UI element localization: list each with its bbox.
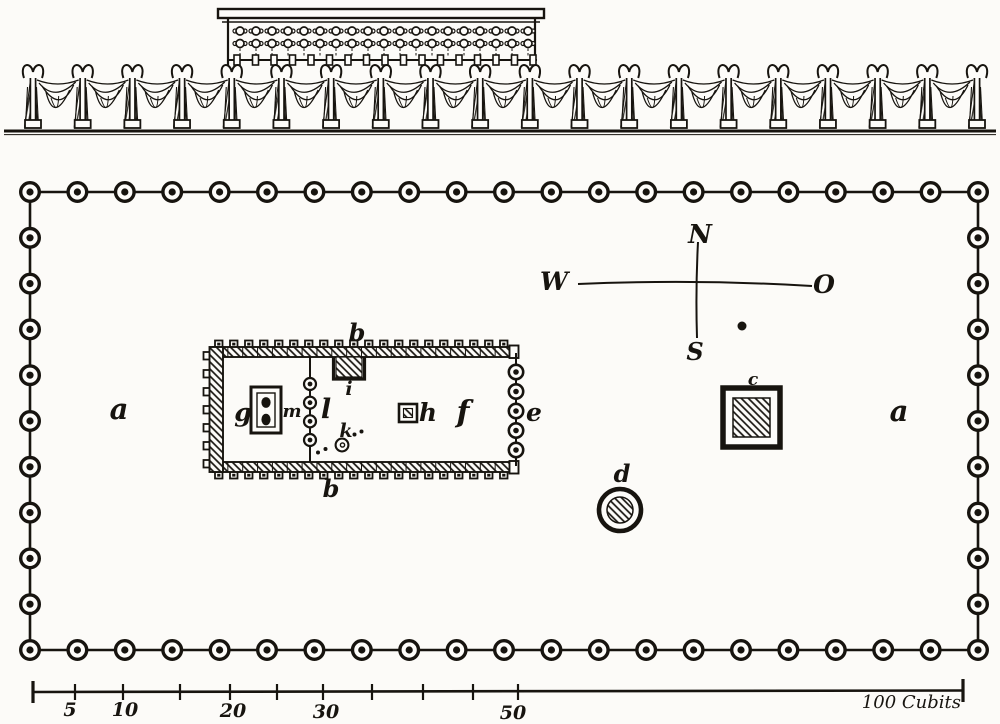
curtain-drape (733, 80, 775, 108)
curtain-loop (268, 27, 276, 35)
court-pillar-dot (121, 646, 128, 653)
court-cord (30, 192, 978, 650)
compass-east-label: O (813, 270, 835, 299)
curtain-drape (136, 80, 178, 108)
board-knob-pin (472, 343, 475, 346)
drape-fold (37, 80, 79, 84)
board-knob-pin (277, 474, 280, 477)
court-pillar-dot (927, 188, 934, 195)
drape-fold (584, 80, 626, 84)
label-b-top: b (349, 318, 366, 347)
drape-fold (87, 80, 129, 84)
board-knob-pin (262, 343, 265, 346)
pillar-shaft (925, 76, 930, 122)
court-pillar-dot (832, 646, 839, 653)
pillar-shaft (676, 76, 681, 122)
court-pillar (21, 183, 40, 202)
pillar-shaft (80, 76, 85, 122)
curtain-loop (332, 27, 340, 35)
court-pillar-dot (453, 188, 460, 195)
scale-label-50: 50 (500, 702, 526, 724)
pillar-capital (967, 65, 987, 78)
court-pillar (969, 595, 988, 614)
court-pillar-dot (595, 646, 602, 653)
pillar-shaft (825, 76, 830, 122)
curtain-loop (524, 27, 532, 35)
curtain-loop (492, 27, 500, 35)
rod-bead (253, 55, 259, 65)
rod-bead (290, 55, 296, 65)
compass-south-label: S (686, 337, 703, 366)
veil-pillar-dot (308, 382, 313, 387)
drape-fold (683, 80, 725, 84)
pillar-capital (718, 65, 738, 78)
court-pillar-dot (974, 234, 981, 241)
drape-fold (285, 80, 327, 84)
court-pillar (921, 183, 940, 202)
court-pillar (969, 458, 988, 477)
curtain-loop (380, 27, 388, 35)
court-pillar-dot (26, 646, 33, 653)
board-knob-pin (502, 474, 505, 477)
drape-fold (236, 80, 278, 84)
court-pillar-dot (26, 601, 33, 608)
curtain-loop (236, 27, 244, 35)
curtain-drape (236, 80, 278, 108)
drape-fold (733, 80, 775, 84)
court-pillar (732, 183, 751, 202)
compass-ns-line (696, 242, 698, 338)
curtain-loop (252, 27, 260, 35)
curtain-loop (508, 27, 516, 35)
court-pillar (353, 641, 372, 660)
court-pillar-dot (358, 646, 365, 653)
court-pillar-dot (406, 646, 413, 653)
board-knob-pin (382, 474, 385, 477)
board-knob-pin (217, 343, 220, 346)
court-pillar-dot (453, 646, 460, 653)
pillar-shaft (428, 76, 433, 122)
court-pillar (732, 641, 751, 660)
court-pillar (21, 274, 40, 293)
east-pillar (509, 404, 523, 418)
pillar-capital (371, 65, 391, 78)
curtain-loop (236, 40, 244, 48)
pillar-capital (867, 65, 887, 78)
court-pillar-dot (26, 555, 33, 562)
pillar-shaft (130, 76, 135, 122)
curtain-loop (348, 27, 356, 35)
board-knob-pin (337, 343, 340, 346)
east-pillar (509, 365, 523, 379)
court-pillar-dot (26, 280, 33, 287)
court-pillar-dot (548, 188, 555, 195)
scale-line (33, 691, 963, 693)
label-b-bottom: b (323, 474, 340, 503)
board-knob-pin (322, 343, 325, 346)
veil-pillar (304, 415, 316, 427)
court-pillar-dot (974, 326, 981, 333)
pillar-capital (122, 65, 142, 78)
board-knob-pin (412, 343, 415, 346)
curtain-loop (476, 40, 484, 48)
tabernacle-figure: N W O S a a (0, 0, 1000, 724)
pillar-capital (917, 65, 937, 78)
board-knob-pin (487, 474, 490, 477)
court-pillar-dot (406, 188, 413, 195)
pillar-capital (23, 65, 43, 78)
curtain-drape (832, 80, 874, 108)
curtain-loop (332, 40, 340, 48)
table-recess-fill (336, 357, 362, 377)
east-pillar-dot (513, 389, 519, 395)
pillar-shaft (378, 76, 383, 122)
court-pillar (827, 641, 846, 660)
curtain-drape (484, 80, 526, 108)
court-pillar (116, 183, 135, 202)
pillar-base (323, 120, 339, 128)
board-knob-pin (427, 343, 430, 346)
court-pillar-dot (169, 188, 176, 195)
board-knob-pin (397, 343, 400, 346)
court-pillar-dot (785, 646, 792, 653)
court-pillar-dot (169, 646, 176, 653)
court-pillar-dot (74, 646, 81, 653)
court-pillar (353, 183, 372, 202)
veil-pillar (304, 434, 316, 446)
pillar-base (770, 120, 786, 128)
west-wall (210, 347, 224, 472)
pillar-shaft (974, 76, 979, 122)
court-pillar-dot (26, 509, 33, 516)
ark-chest (251, 387, 281, 433)
court-pillar (969, 183, 988, 202)
drape-fold (633, 80, 675, 84)
pillar-capital (818, 65, 838, 78)
east-pillar-dot (513, 369, 519, 375)
court-pillar-dot (26, 326, 33, 333)
curtain-loop (284, 27, 292, 35)
court-pillar-dot (26, 234, 33, 241)
rod-bead (327, 55, 333, 65)
engraving-sheet: N W O S a a (0, 0, 1000, 724)
scale-label-100-cubits: 100 Cubits (862, 692, 961, 713)
incense-altar-inner (404, 409, 413, 418)
curtain-loop (364, 40, 372, 48)
pillar-capital (172, 65, 192, 78)
court-pillar (684, 641, 703, 660)
court-pillar (969, 320, 988, 339)
court-pillar (590, 641, 609, 660)
court-pillar-dot (737, 188, 744, 195)
pillar-base (572, 120, 588, 128)
pillar-base (721, 120, 737, 128)
board-knob-pin (397, 474, 400, 477)
label-e: e (526, 398, 542, 427)
board-knob-pin (307, 474, 310, 477)
board-knob-pin (277, 343, 280, 346)
curtain-loop (444, 40, 452, 48)
court-pillar-dot (974, 188, 981, 195)
rod-bead (308, 55, 314, 65)
curtain-loop (460, 27, 468, 35)
court-pillar (779, 183, 798, 202)
candlestick-dot (316, 451, 320, 455)
court-pillar (210, 183, 229, 202)
court-pillar (21, 458, 40, 477)
court-pillar-dot (643, 188, 650, 195)
board-knob-pin (382, 343, 385, 346)
court-pillar (163, 183, 182, 202)
square-altar-inner (733, 398, 770, 437)
board-knob-pin (247, 343, 250, 346)
court-pillar-dot (263, 646, 270, 653)
court-pillar-dot (643, 646, 650, 653)
court-pillar (542, 183, 561, 202)
curtain-loop (300, 40, 308, 48)
curtain-loop (252, 40, 260, 48)
court-pillar-dot (832, 188, 839, 195)
curtain-drape (584, 80, 626, 108)
court-pillar-dot (974, 463, 981, 470)
curtain-loop (460, 40, 468, 48)
ark-mark (261, 414, 270, 426)
scale-label-5: 5 (63, 699, 76, 721)
court-pillar-dot (216, 646, 223, 653)
court-pillar-dot (737, 646, 744, 653)
pillar-base (820, 120, 836, 128)
pillar-base (472, 120, 488, 128)
court-pillar-dot (974, 601, 981, 608)
court-pillar (637, 183, 656, 202)
tabernacle-elevation (218, 9, 544, 68)
compass-rose: N W O S (540, 220, 835, 366)
pillar-base (224, 120, 240, 128)
court-pillar (116, 641, 135, 660)
curtain-drape (534, 80, 576, 108)
board-knob-pin (457, 343, 460, 346)
pillar-base (373, 120, 389, 128)
court-pillar-dot (974, 417, 981, 424)
pillar-capital (420, 65, 440, 78)
drape-fold (186, 80, 228, 84)
curtain-drape (385, 80, 427, 108)
drape-fold (832, 80, 874, 84)
pillar-base (273, 120, 289, 128)
pillar-shaft (726, 76, 731, 122)
curtain-drape (87, 80, 129, 108)
east-pillar (509, 443, 523, 457)
pillar-base (969, 120, 985, 128)
court-pillar (305, 641, 324, 660)
scale-bar (33, 679, 963, 703)
rod-bead (401, 55, 407, 65)
pillar-capital (271, 65, 291, 78)
compass-west-label: W (540, 267, 571, 296)
board-knob-pin (412, 474, 415, 477)
elevation-view (4, 9, 996, 135)
rod-bead (345, 55, 351, 65)
label-d: d (614, 459, 631, 488)
pillar-base (174, 120, 190, 128)
pillar-capital (768, 65, 788, 78)
rod-bead (530, 55, 536, 65)
court-pillar (969, 641, 988, 660)
board-knob-pin (427, 474, 430, 477)
court-pillar-dot (974, 372, 981, 379)
east-pillar (509, 384, 523, 398)
label-c: c (748, 370, 759, 390)
board-knob-pin (352, 474, 355, 477)
rod-bead (271, 55, 277, 65)
court-pillar (447, 183, 466, 202)
round-laver (599, 489, 641, 531)
pillar-shaft (577, 76, 582, 122)
board-knob-pin (487, 343, 490, 346)
candlestick-dot (360, 430, 364, 434)
board-knob-pin (307, 343, 310, 346)
court-pillar (68, 183, 87, 202)
curtain-loop (380, 40, 388, 48)
court-pillar (495, 183, 514, 202)
rod-bead (512, 55, 518, 65)
court-pillar-dot (690, 188, 697, 195)
pillar-shaft (30, 76, 35, 122)
curtain-drape (683, 80, 725, 108)
compass-dot (738, 322, 747, 331)
court-pillar-dot (74, 188, 81, 195)
court-pillar (969, 229, 988, 248)
court-pillar (21, 595, 40, 614)
rod-bead (493, 55, 499, 65)
east-pillar-dot (513, 447, 519, 453)
court-pillar (258, 641, 277, 660)
curtain-drape (37, 80, 79, 108)
court-pillar-dot (26, 463, 33, 470)
court-pillar-dot (500, 188, 507, 195)
rod-bead (419, 55, 425, 65)
court-pillar-dot (500, 646, 507, 653)
pillar-shaft (875, 76, 880, 122)
drape-fold (534, 80, 576, 84)
court-pillar (684, 183, 703, 202)
court-pillar-dot (311, 646, 318, 653)
curtain-drape (186, 80, 228, 108)
pillar-shaft (527, 76, 532, 122)
curtain-loop (428, 27, 436, 35)
court-pillar-dot (26, 417, 33, 424)
court-pillar (258, 183, 277, 202)
pillar-base (870, 120, 886, 128)
pillar-base (422, 120, 438, 128)
compass-north-label: N (687, 220, 713, 250)
board-knob-pin (232, 343, 235, 346)
rod-bead (456, 55, 462, 65)
curtain-drape (285, 80, 327, 108)
court-pillar (400, 183, 419, 202)
drape-fold (484, 80, 526, 84)
court-pillar (495, 641, 514, 660)
pillar-capital (619, 65, 639, 78)
curtain-loop (284, 40, 292, 48)
board-knob-pin (232, 474, 235, 477)
court-pillar (21, 320, 40, 339)
court-pillar (969, 549, 988, 568)
curtain-loop (364, 27, 372, 35)
rod-bead (438, 55, 444, 65)
curtain-loop (396, 40, 404, 48)
pillar-shaft (179, 76, 184, 122)
court-pillar-dot (26, 188, 33, 195)
curtain-drape (335, 80, 377, 108)
pillar-capital (569, 65, 589, 78)
rod-bead (234, 55, 240, 65)
court-pillar (21, 641, 40, 660)
court-pillar-dot (880, 646, 887, 653)
court-pillar-dot (690, 646, 697, 653)
east-pillar (509, 423, 523, 437)
court-pillar (921, 641, 940, 660)
court-pillar (68, 641, 87, 660)
court-pillar (400, 641, 419, 660)
label-l: l (321, 394, 331, 425)
candlestick-dot (324, 447, 328, 451)
curtain-loop (508, 40, 516, 48)
curtain-loop (316, 40, 324, 48)
pillar-shaft (329, 76, 334, 122)
drape-fold (782, 80, 824, 84)
curtain-loop (316, 27, 324, 35)
scale-label-10: 10 (112, 699, 138, 721)
court-pillar-dot (358, 188, 365, 195)
curtain-loop (428, 40, 436, 48)
curtain-drape (633, 80, 675, 108)
curtain-drape (882, 80, 924, 108)
court-pillar (210, 641, 229, 660)
pillar-base (25, 120, 41, 128)
court-pillar (163, 641, 182, 660)
curtain-drape (931, 80, 973, 108)
pillar-capital (520, 65, 540, 78)
curtain-loop (444, 27, 452, 35)
drape-fold (385, 80, 427, 84)
incense-altar (399, 404, 417, 422)
court-pillar (779, 641, 798, 660)
east-pillar-dot (513, 408, 519, 414)
pillar-shaft (627, 76, 632, 122)
veil-pillar (304, 397, 316, 409)
round-laver-inner (607, 497, 633, 523)
pillar-capital (222, 65, 242, 78)
east-pillar-dot (513, 428, 519, 434)
board-knob-pin (442, 474, 445, 477)
pillar-base (621, 120, 637, 128)
pillar-base (919, 120, 935, 128)
pillar-shaft (229, 76, 234, 122)
curtain-loop (524, 40, 532, 48)
board-knob-pin (367, 343, 370, 346)
pillar-shaft (279, 76, 284, 122)
curtain-loop (348, 40, 356, 48)
drape-fold (931, 80, 973, 84)
court-pillar (969, 412, 988, 431)
scale-label-20: 20 (219, 700, 246, 722)
court-pillar-dot (974, 555, 981, 562)
candlestick-dot (353, 433, 357, 437)
label-k: k (339, 420, 352, 442)
drape-fold (136, 80, 178, 84)
curtain-loop (492, 40, 500, 48)
